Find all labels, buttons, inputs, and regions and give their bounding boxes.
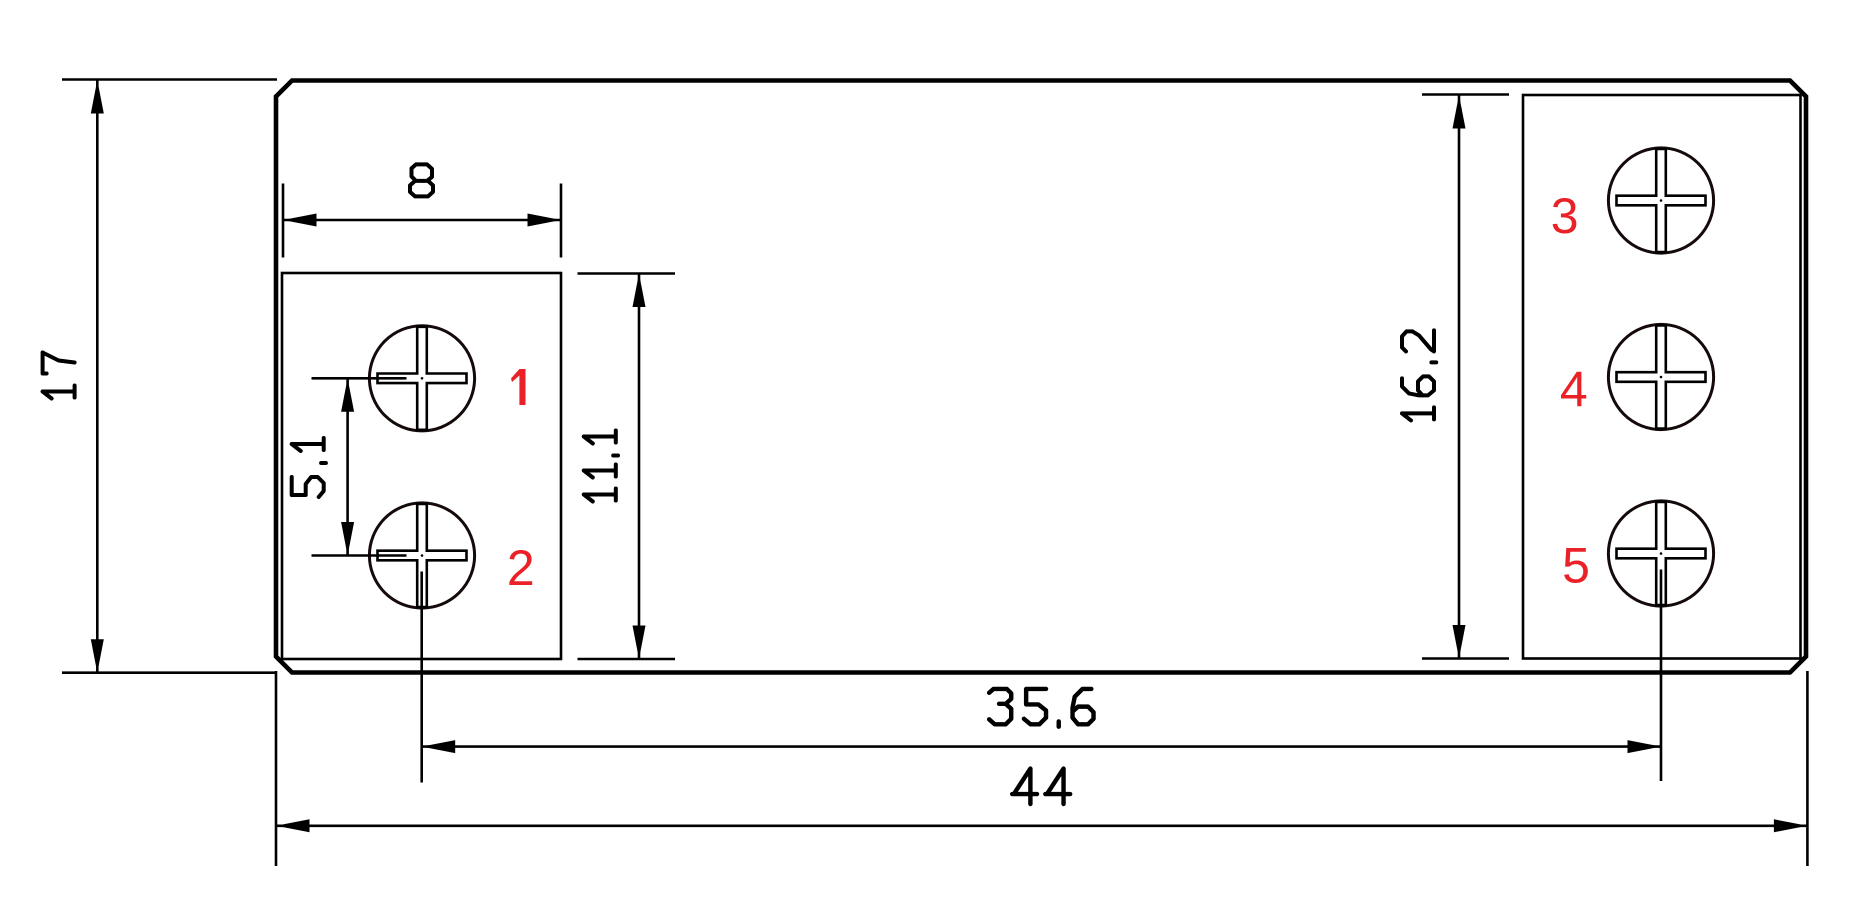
svg-text:3: 3: [1551, 188, 1579, 244]
svg-text:4: 4: [1560, 362, 1588, 418]
svg-text:5: 5: [1562, 538, 1590, 594]
svg-text:2: 2: [507, 540, 535, 596]
